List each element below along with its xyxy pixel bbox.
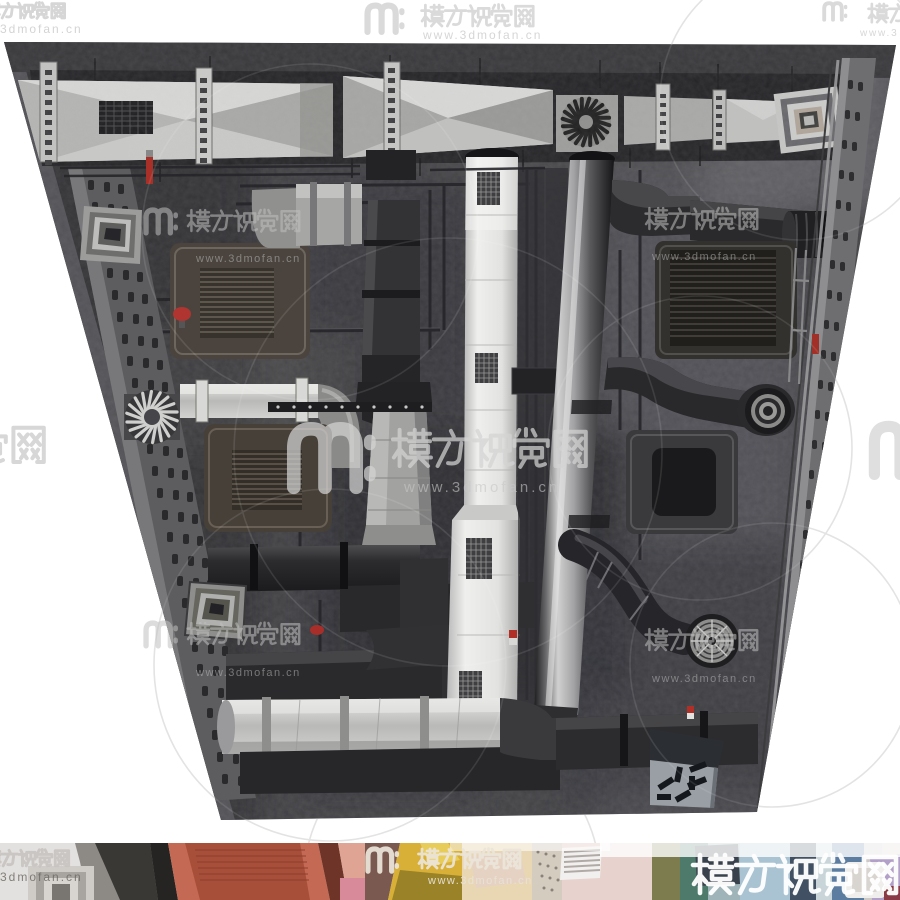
svg-text:www.3dmofan.cn: www.3dmofan.cn — [195, 667, 301, 679]
svg-text:www.3dmofan.cn: www.3dmofan.cn — [403, 479, 560, 496]
svg-text:www.3: www.3 — [859, 28, 898, 39]
svg-text:www.3dmofan.cn: www.3dmofan.cn — [422, 28, 542, 42]
svg-text:www.3dmofan.cn: www.3dmofan.cn — [427, 875, 533, 887]
svg-text:www.3dmofan.cn: www.3dmofan.cn — [651, 673, 757, 685]
svg-text:3dmofan.cn: 3dmofan.cn — [0, 870, 83, 884]
svg-text:3dmofan.cn: 3dmofan.cn — [0, 22, 83, 36]
svg-text:www.3dmofan.cn: www.3dmofan.cn — [651, 251, 757, 263]
svg-text:www.3dmofan.cn: www.3dmofan.cn — [195, 253, 301, 265]
